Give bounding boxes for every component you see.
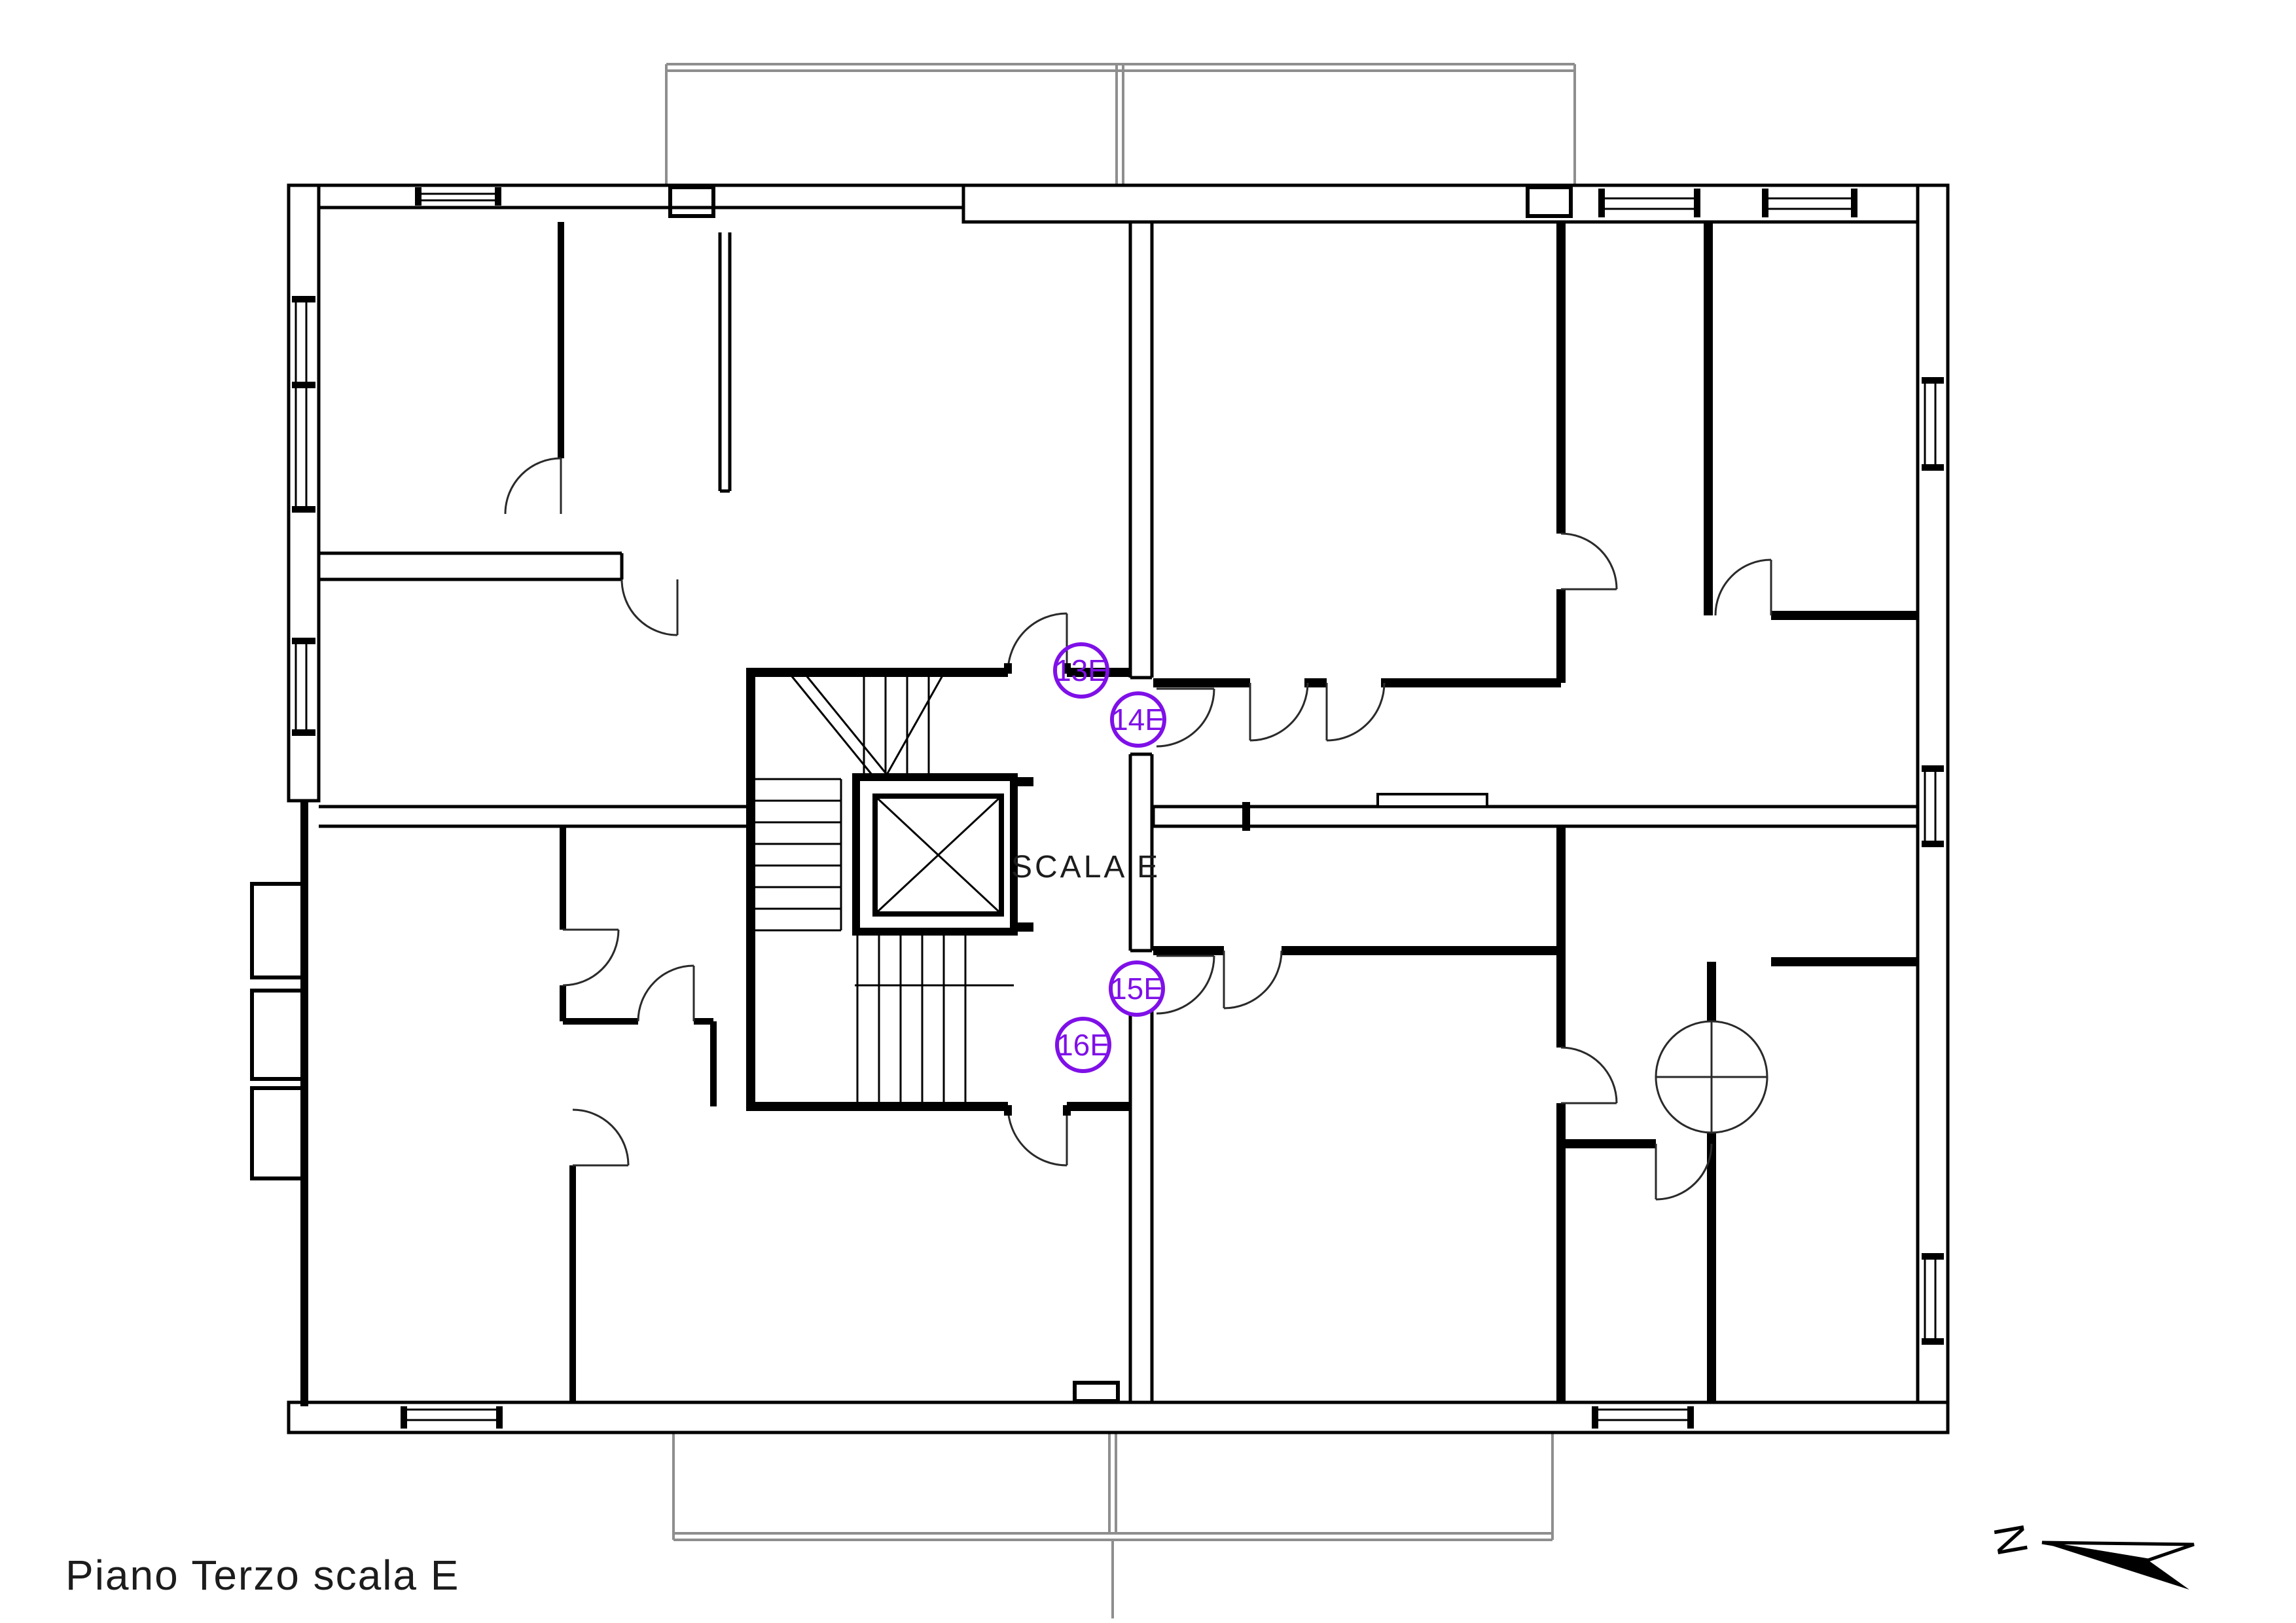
svg-text:N: N — [1984, 1520, 2037, 1559]
unit-badge-14e: 14E — [1111, 693, 1165, 746]
left-bay-window-2 — [252, 991, 302, 1079]
unit-badge-15e: 15E — [1110, 962, 1164, 1015]
doors — [505, 458, 1771, 1199]
left-bay-window-3 — [252, 1088, 302, 1178]
elevator-wall-stub-bottom — [1014, 922, 1033, 932]
floor-plan-canvas: SCALA E 13E 14E 15E 16E N Piano Terzo sc… — [0, 0, 2296, 1623]
partition-walls — [561, 222, 713, 1402]
double-swing-door — [1656, 1021, 1767, 1133]
north-letter: N — [1984, 1520, 2037, 1559]
unit-badge-16e: 16E — [1056, 1019, 1110, 1071]
floor-plan-drawing: SCALA E 13E 14E 15E 16E N Piano Terzo sc… — [0, 0, 2296, 1623]
left-facade-lower — [252, 801, 304, 1406]
north-arrow: N — [1984, 1520, 2194, 1590]
duct-niche — [1378, 794, 1487, 807]
balcony-top — [666, 64, 1575, 185]
divider-stub — [1242, 802, 1250, 831]
unit-badge-label: 14E — [1111, 702, 1165, 737]
unit-badge-13e: 13E — [1054, 644, 1108, 697]
unit-badge-label: 13E — [1054, 653, 1108, 687]
door-15e — [1157, 956, 1214, 1013]
door-16e — [1008, 1106, 1067, 1165]
balcony-bottom — [673, 1432, 1552, 1618]
plan-title: Piano Terzo scala E — [65, 1552, 459, 1599]
left-bay-window-1 — [252, 884, 302, 977]
elevator-wall-stub-top — [1014, 777, 1033, 786]
stairwell-label: SCALA E — [1011, 850, 1160, 884]
exterior-walls — [289, 185, 1948, 1432]
unit-badge-label: 15E — [1110, 972, 1164, 1006]
unit-badge-label: 16E — [1056, 1028, 1110, 1062]
elevator — [856, 777, 1033, 932]
